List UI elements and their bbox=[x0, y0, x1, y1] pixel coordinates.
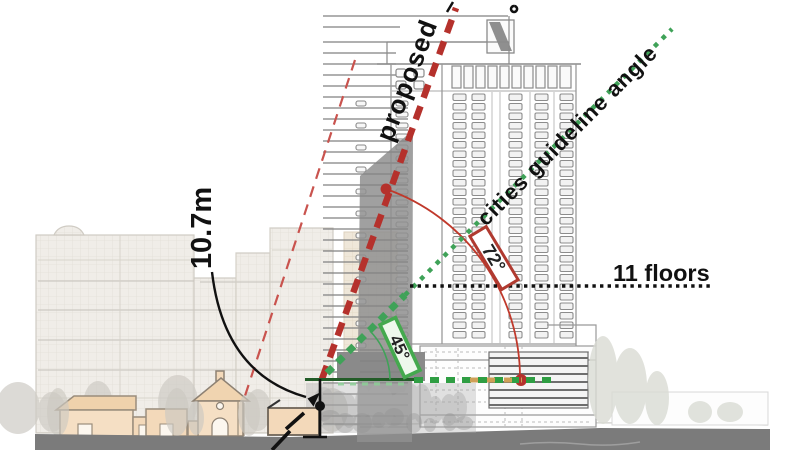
svg-text:10.7m: 10.7m bbox=[186, 187, 218, 269]
svg-text:11 floors: 11 floors bbox=[613, 260, 710, 286]
